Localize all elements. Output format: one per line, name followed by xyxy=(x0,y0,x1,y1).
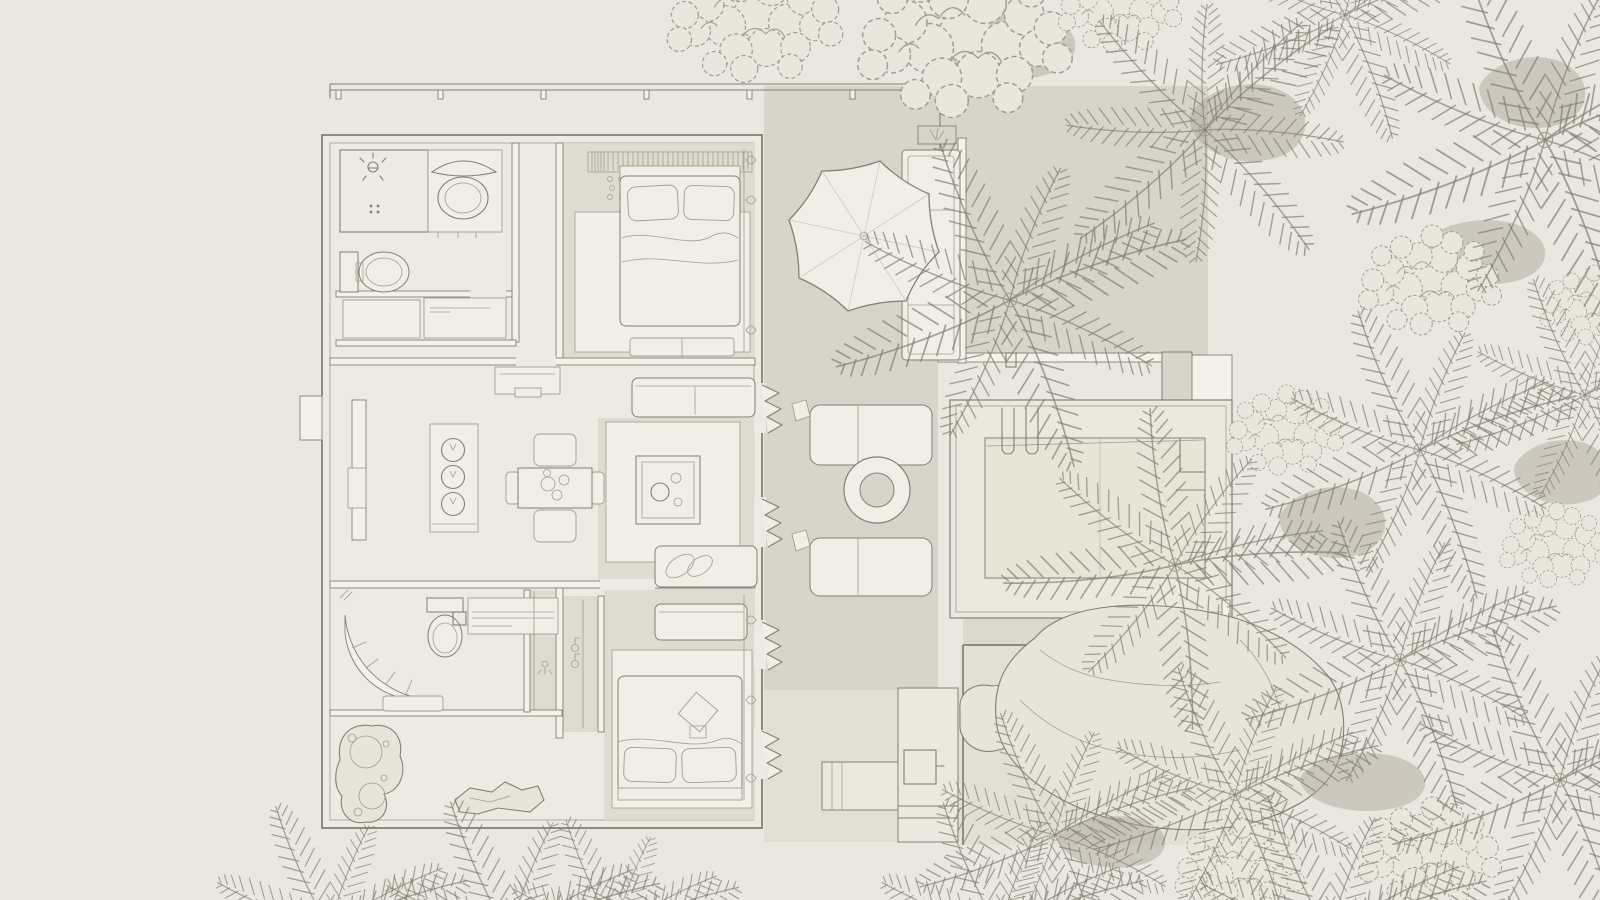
pillow xyxy=(681,747,736,783)
bath-bench xyxy=(343,300,420,338)
entry-threshold xyxy=(300,396,322,440)
console-with-stools xyxy=(430,424,478,532)
coffee-table xyxy=(636,456,700,524)
bed-1 xyxy=(620,166,740,326)
pillow xyxy=(627,185,679,222)
chaise-daybed xyxy=(655,546,757,587)
pillow xyxy=(623,747,676,783)
vanity-2 xyxy=(468,598,558,634)
bench-2 xyxy=(383,696,443,711)
round-side-table xyxy=(844,457,910,523)
dining-chair xyxy=(534,434,576,466)
pillow xyxy=(683,185,734,221)
pool-wall-cap xyxy=(1192,355,1232,403)
sofa xyxy=(632,378,755,417)
bedroom-sofa xyxy=(655,604,747,640)
pool-wall-block xyxy=(1162,352,1192,402)
toilet-2 xyxy=(427,598,463,657)
walkway-steps xyxy=(822,762,898,810)
tv-console xyxy=(495,367,560,397)
dining-chair xyxy=(534,510,576,542)
sun-lounger-2 xyxy=(810,538,932,596)
floor-plan-canvas xyxy=(0,0,1600,900)
dining-table xyxy=(518,468,592,508)
vanity-1 xyxy=(424,298,506,338)
closet-floor xyxy=(563,596,598,732)
toilet-1 xyxy=(340,252,409,292)
building xyxy=(300,135,782,828)
floor-plan-render xyxy=(0,0,1600,900)
bed-2 xyxy=(618,676,742,800)
side-cabinet xyxy=(348,468,366,508)
sun-lounger-1 xyxy=(810,405,932,465)
